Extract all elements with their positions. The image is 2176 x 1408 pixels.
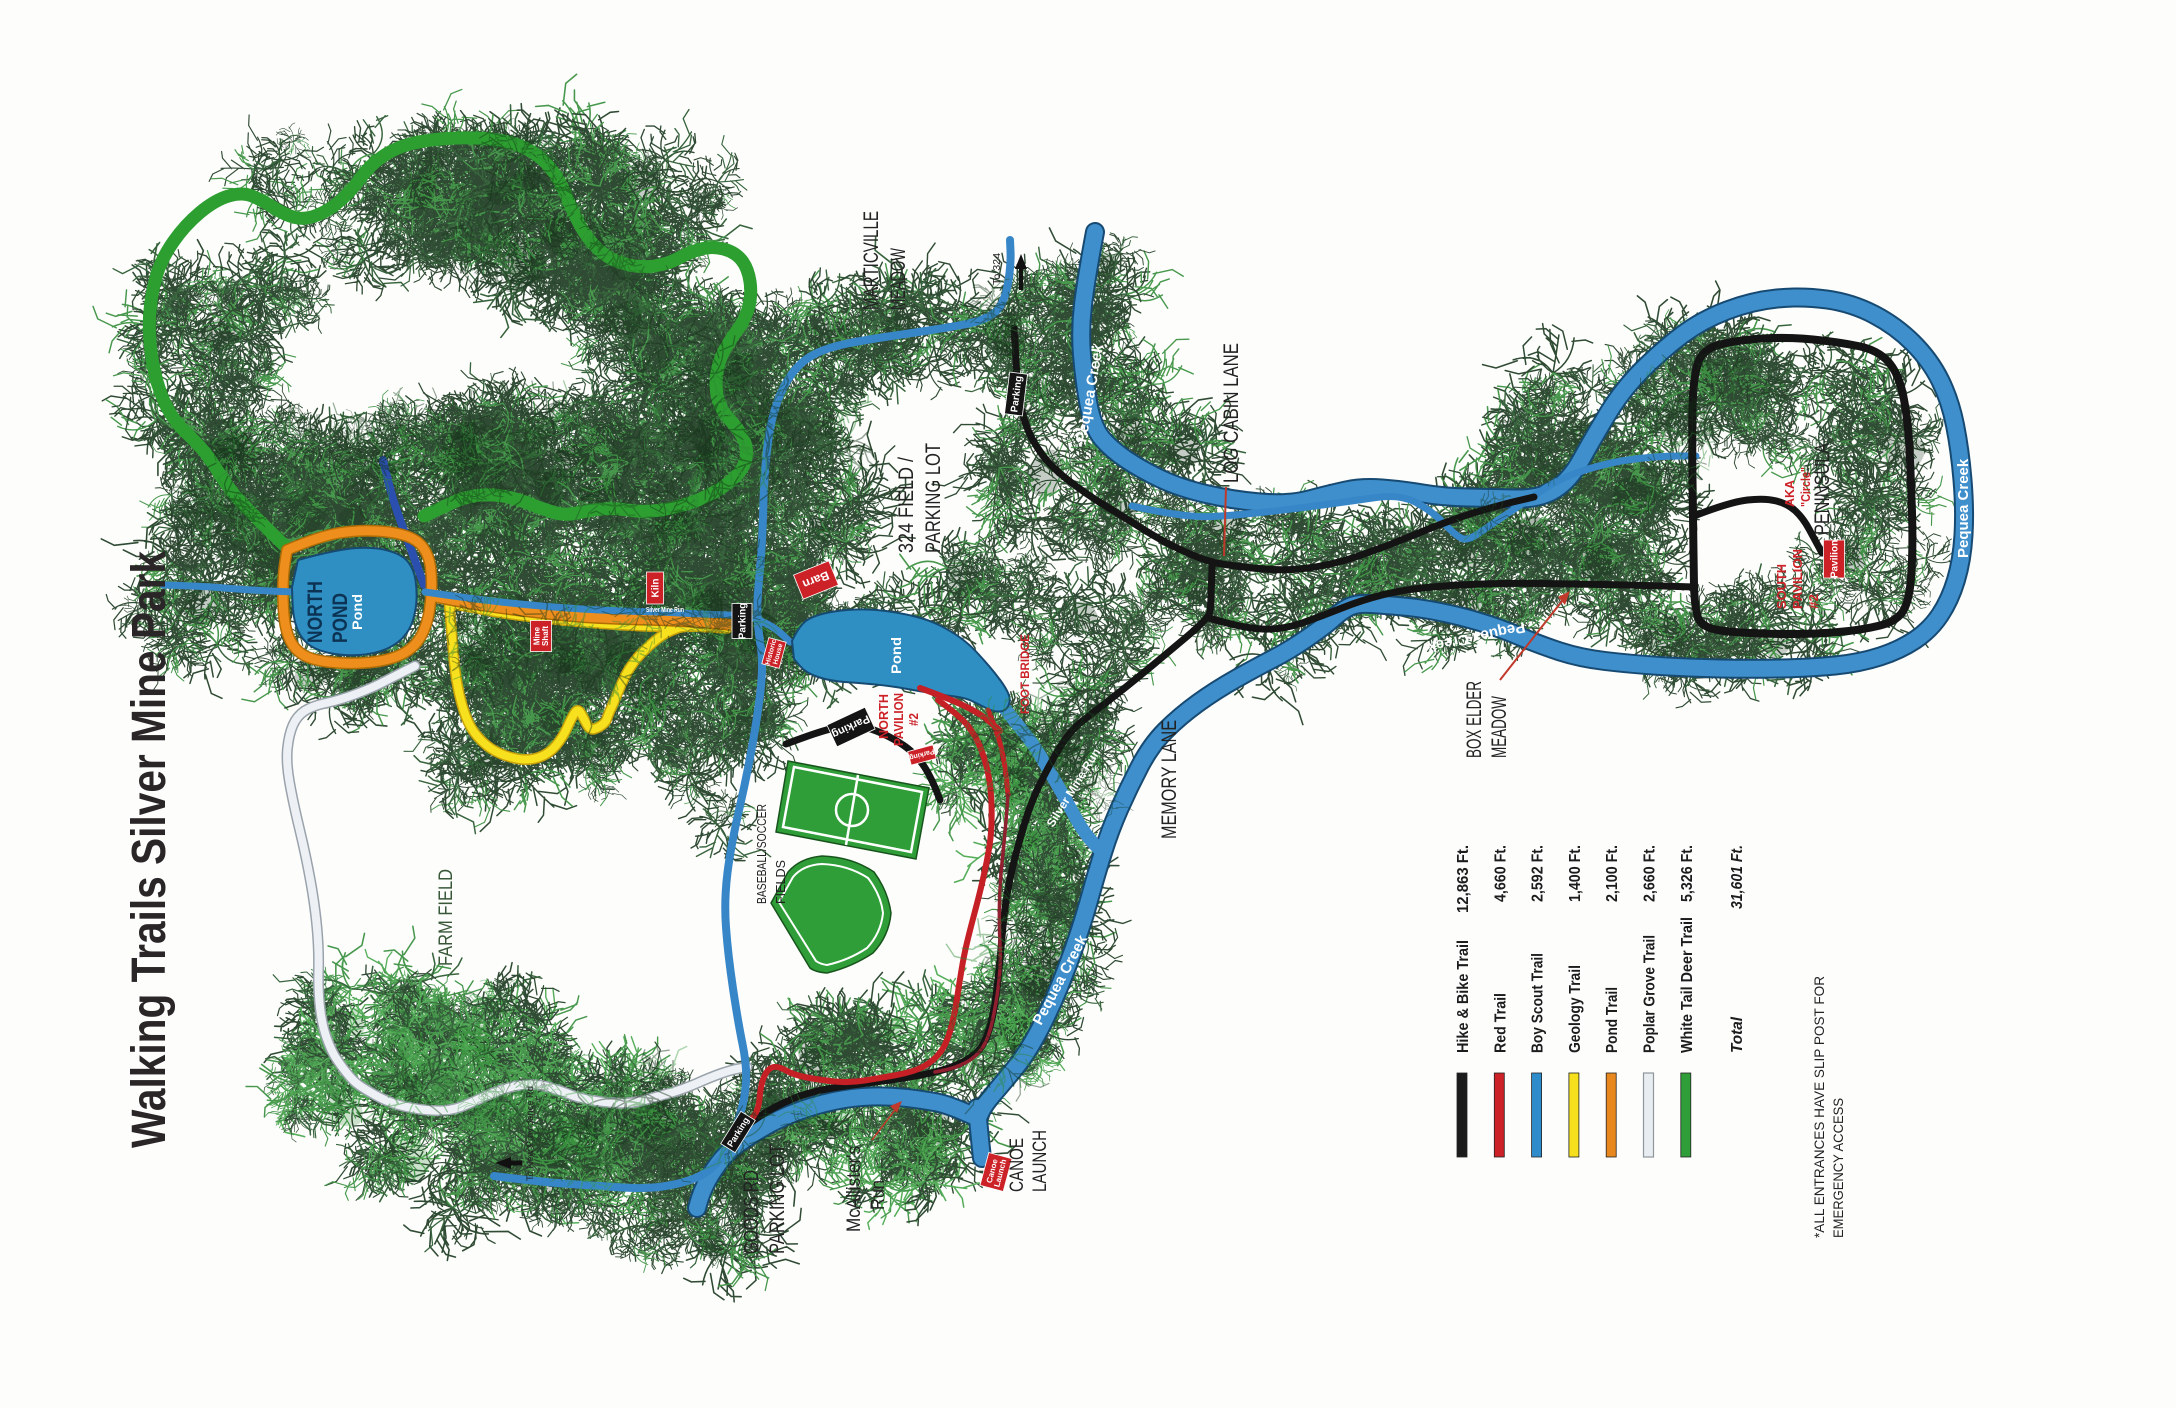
svg-text:McAllister's: McAllister's [844, 1146, 865, 1232]
svg-text:BOX ELDER: BOX ELDER [1463, 681, 1486, 758]
svg-text:#2: #2 [1806, 594, 1821, 609]
svg-text:Walking Trails Silver Mine Pa: Walking Trails Silver Mine Park [123, 551, 176, 1148]
svg-text:MARTICVILLE: MARTICVILLE [860, 211, 883, 310]
svg-text:PARKING LOT: PARKING LOT [766, 1144, 789, 1254]
svg-text:"Circle": "Circle" [1798, 467, 1813, 507]
svg-text:PENINSULA: PENINSULA [1811, 443, 1834, 535]
svg-text:Boy Scout Trail: Boy Scout Trail [1530, 953, 1547, 1053]
svg-text:MEADOW: MEADOW [1488, 696, 1511, 758]
svg-text:MEADOW: MEADOW [887, 248, 910, 310]
svg-text:2,592 Ft.: 2,592 Ft. [1530, 845, 1547, 902]
svg-text:Shaft: Shaft [541, 626, 550, 646]
svg-text:GOODS RD: GOODS RD [740, 1170, 763, 1254]
svg-text:CANOE: CANOE [1007, 1138, 1028, 1192]
svg-text:#2: #2 [906, 713, 921, 726]
svg-text:Kiln: Kiln [651, 579, 662, 598]
svg-text:MEMORY LANE: MEMORY LANE [1158, 720, 1181, 839]
svg-text:Parking: Parking [738, 603, 749, 640]
svg-text:LOG CABIN LANE: LOG CABIN LANE [1220, 343, 1243, 483]
svg-text:Geology Trail: Geology Trail [1567, 965, 1584, 1053]
svg-text:31,601 Ft.: 31,601 Ft. [1729, 845, 1746, 909]
svg-text:4,660 Ft.: 4,660 Ft. [1492, 845, 1509, 902]
svg-text:1,400 Ft.: 1,400 Ft. [1567, 845, 1584, 902]
svg-text:Pond Trail: Pond Trail [1604, 987, 1621, 1053]
svg-text:BASEBALL/SOCCER: BASEBALL/SOCCER [754, 804, 769, 904]
svg-text:NORTH: NORTH [876, 694, 891, 739]
svg-text:Poplar Grove Trail: Poplar Grove Trail [1642, 935, 1659, 1053]
svg-text:FARM FIELD: FARM FIELD [436, 869, 457, 966]
svg-text:Silver Mine Run: Silver Mine Run [646, 607, 684, 614]
svg-text:White Tail Deer Trail: White Tail Deer Trail [1679, 917, 1696, 1053]
svg-text:Pequea Creek: Pequea Creek [1955, 458, 1972, 558]
svg-text:Pond: Pond [888, 637, 904, 674]
svg-text:Pavilion: Pavilion [1830, 540, 1841, 578]
svg-text:2,100 Ft.: 2,100 Ft. [1604, 845, 1621, 902]
svg-text:12,863 Ft.: 12,863 Ft. [1455, 845, 1472, 913]
svg-text:FOOT BRIDGE: FOOT BRIDGE [1018, 634, 1032, 714]
svg-text:AKA: AKA [1782, 479, 1797, 507]
svg-text:PARKING LOT: PARKING LOT [922, 443, 945, 553]
svg-text:PAVILION: PAVILION [891, 693, 906, 746]
svg-text:To 324: To 324 [992, 253, 1003, 285]
svg-text:LAUNCH: LAUNCH [1030, 1130, 1051, 1192]
svg-text:Run: Run [868, 1180, 889, 1210]
svg-text:FIELDS: FIELDS [773, 860, 788, 904]
svg-text:Hike & Bike Trail: Hike & Bike Trail [1455, 940, 1472, 1053]
svg-text:Red Trail: Red Trail [1492, 993, 1509, 1053]
svg-text:*ALL ENTRANCES HAVE SLIP POST: *ALL ENTRANCES HAVE SLIP POST FOR [1811, 976, 1827, 1238]
svg-text:EMERGENCY ACCESS: EMERGENCY ACCESS [1830, 1098, 1846, 1238]
svg-text:PAVILION: PAVILION [1790, 549, 1805, 609]
svg-text:2,660 Ft.: 2,660 Ft. [1642, 845, 1659, 902]
svg-text:NORTH: NORTH [304, 581, 327, 643]
svg-text:SOUTH: SOUTH [1774, 564, 1789, 609]
svg-text:To New Providence Rd: To New Providence Rd [525, 1086, 535, 1181]
svg-text:324 FIELD /: 324 FIELD / [895, 457, 918, 553]
svg-text:5,326 Ft.: 5,326 Ft. [1679, 845, 1696, 902]
svg-text:Total: Total [1729, 1016, 1746, 1053]
svg-text:Pond: Pond [349, 594, 365, 630]
